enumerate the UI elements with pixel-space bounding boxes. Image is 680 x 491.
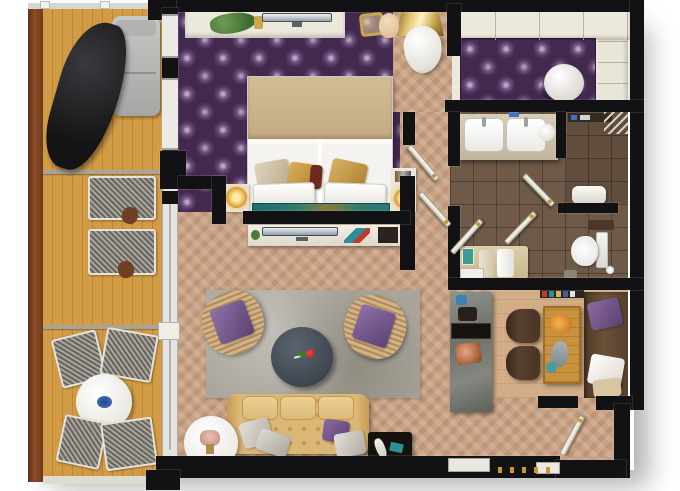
- gold-hinge-dot: [546, 467, 550, 473]
- console-dark-box: [378, 227, 398, 243]
- book: [556, 291, 561, 297]
- bedroom-tv: [262, 13, 332, 22]
- wall-bedroom-L-vertical: [212, 176, 226, 224]
- wc-cabinet: [588, 220, 614, 230]
- shower-bench: [572, 186, 606, 204]
- shampoo-bottles: [580, 115, 590, 120]
- sofa-back-cushion: [242, 396, 278, 420]
- wall-deck-sw-corner: [146, 470, 180, 490]
- tv-stand: [296, 237, 308, 241]
- copper-pot: [455, 341, 483, 365]
- shower-glass-corner: [604, 112, 628, 134]
- gold-hinge-dot: [498, 467, 502, 473]
- counter-black-shelf: [451, 323, 491, 339]
- plant-small: [251, 230, 260, 240]
- wall-right: [630, 0, 644, 410]
- wall-shower-divider: [556, 112, 566, 158]
- bath-mat: [564, 270, 577, 278]
- book: [563, 291, 568, 297]
- gold-hinge-dot: [534, 467, 538, 473]
- wall-bedroom-east-upper: [403, 112, 415, 145]
- gold-hinge-dot: [522, 467, 526, 473]
- wall-closet-bottom: [445, 100, 644, 112]
- wardrobe-top: [452, 10, 630, 40]
- dining-chair: [506, 309, 540, 343]
- rose: [306, 349, 315, 358]
- bedroom-window: [162, 14, 178, 58]
- vessel-bowl: [538, 124, 555, 141]
- wall-wc-north: [558, 203, 618, 213]
- bedside-lamp: [226, 187, 247, 208]
- wall-closet-stub: [447, 4, 461, 56]
- book: [570, 291, 575, 297]
- book: [549, 291, 554, 297]
- food-plate: [548, 314, 572, 334]
- book: [542, 291, 547, 297]
- door-handle: [578, 418, 583, 423]
- wardrobe-right: [598, 40, 628, 104]
- door-handle: [431, 173, 437, 179]
- living-tv: [262, 227, 338, 236]
- deck-divider: [43, 170, 162, 174]
- bottom-window-sill: [448, 458, 490, 472]
- faucet: [482, 117, 486, 127]
- terrace-rail-wood: [28, 8, 43, 482]
- dining-chair: [506, 346, 540, 380]
- wall-glass-black-stub: [162, 191, 178, 204]
- wall-entry-stub-west: [538, 396, 578, 408]
- toilet-bowl: [571, 236, 598, 266]
- toilet-paper: [606, 266, 614, 274]
- cream-chair: [379, 13, 399, 38]
- deck-divider: [43, 325, 162, 329]
- magazines: [344, 228, 370, 243]
- door-handle: [475, 221, 481, 227]
- wall-top: [150, 0, 644, 12]
- blue-toiletries: [509, 112, 519, 117]
- blue-plate: [97, 396, 112, 408]
- door-handle: [529, 214, 535, 220]
- sofa-back-cushion: [318, 396, 354, 420]
- wall-bath-west-upper: [448, 112, 460, 166]
- door-handle: [547, 199, 553, 205]
- railing-post: [40, 1, 50, 9]
- bedroom-tv-stand: [292, 22, 302, 27]
- sofa-back-cushion: [280, 396, 316, 420]
- glass-wall-mullion: [158, 322, 180, 340]
- woven-chair: [100, 417, 158, 472]
- wall-bed-foot: [243, 211, 410, 224]
- teal-art: [462, 248, 474, 265]
- double-bed: [247, 76, 393, 214]
- gold-hinge-dot: [510, 467, 514, 473]
- bottles: [458, 307, 477, 321]
- deck-bottom-sill: [43, 476, 162, 484]
- bedroom-window: [162, 78, 178, 150]
- railing-post: [100, 1, 110, 9]
- faucet: [524, 117, 528, 127]
- blue-dish: [456, 295, 467, 305]
- table-lamp-base: [206, 444, 214, 454]
- sofa-silver-pillow: [333, 430, 367, 459]
- shampoo-bottles: [571, 115, 577, 120]
- coffee-table: [271, 327, 333, 387]
- floorplan-image: [0, 0, 680, 491]
- round-ottoman: [544, 64, 584, 102]
- book-shelf-strip: [540, 290, 584, 298]
- towel-stack: [497, 249, 514, 277]
- wall-entry-bottom: [556, 460, 626, 478]
- tufted-sofa: [227, 394, 369, 464]
- bed-duvet: [248, 77, 392, 139]
- door-handle: [443, 219, 449, 225]
- wall-bath-south: [448, 278, 644, 290]
- teal-cup: [546, 362, 557, 373]
